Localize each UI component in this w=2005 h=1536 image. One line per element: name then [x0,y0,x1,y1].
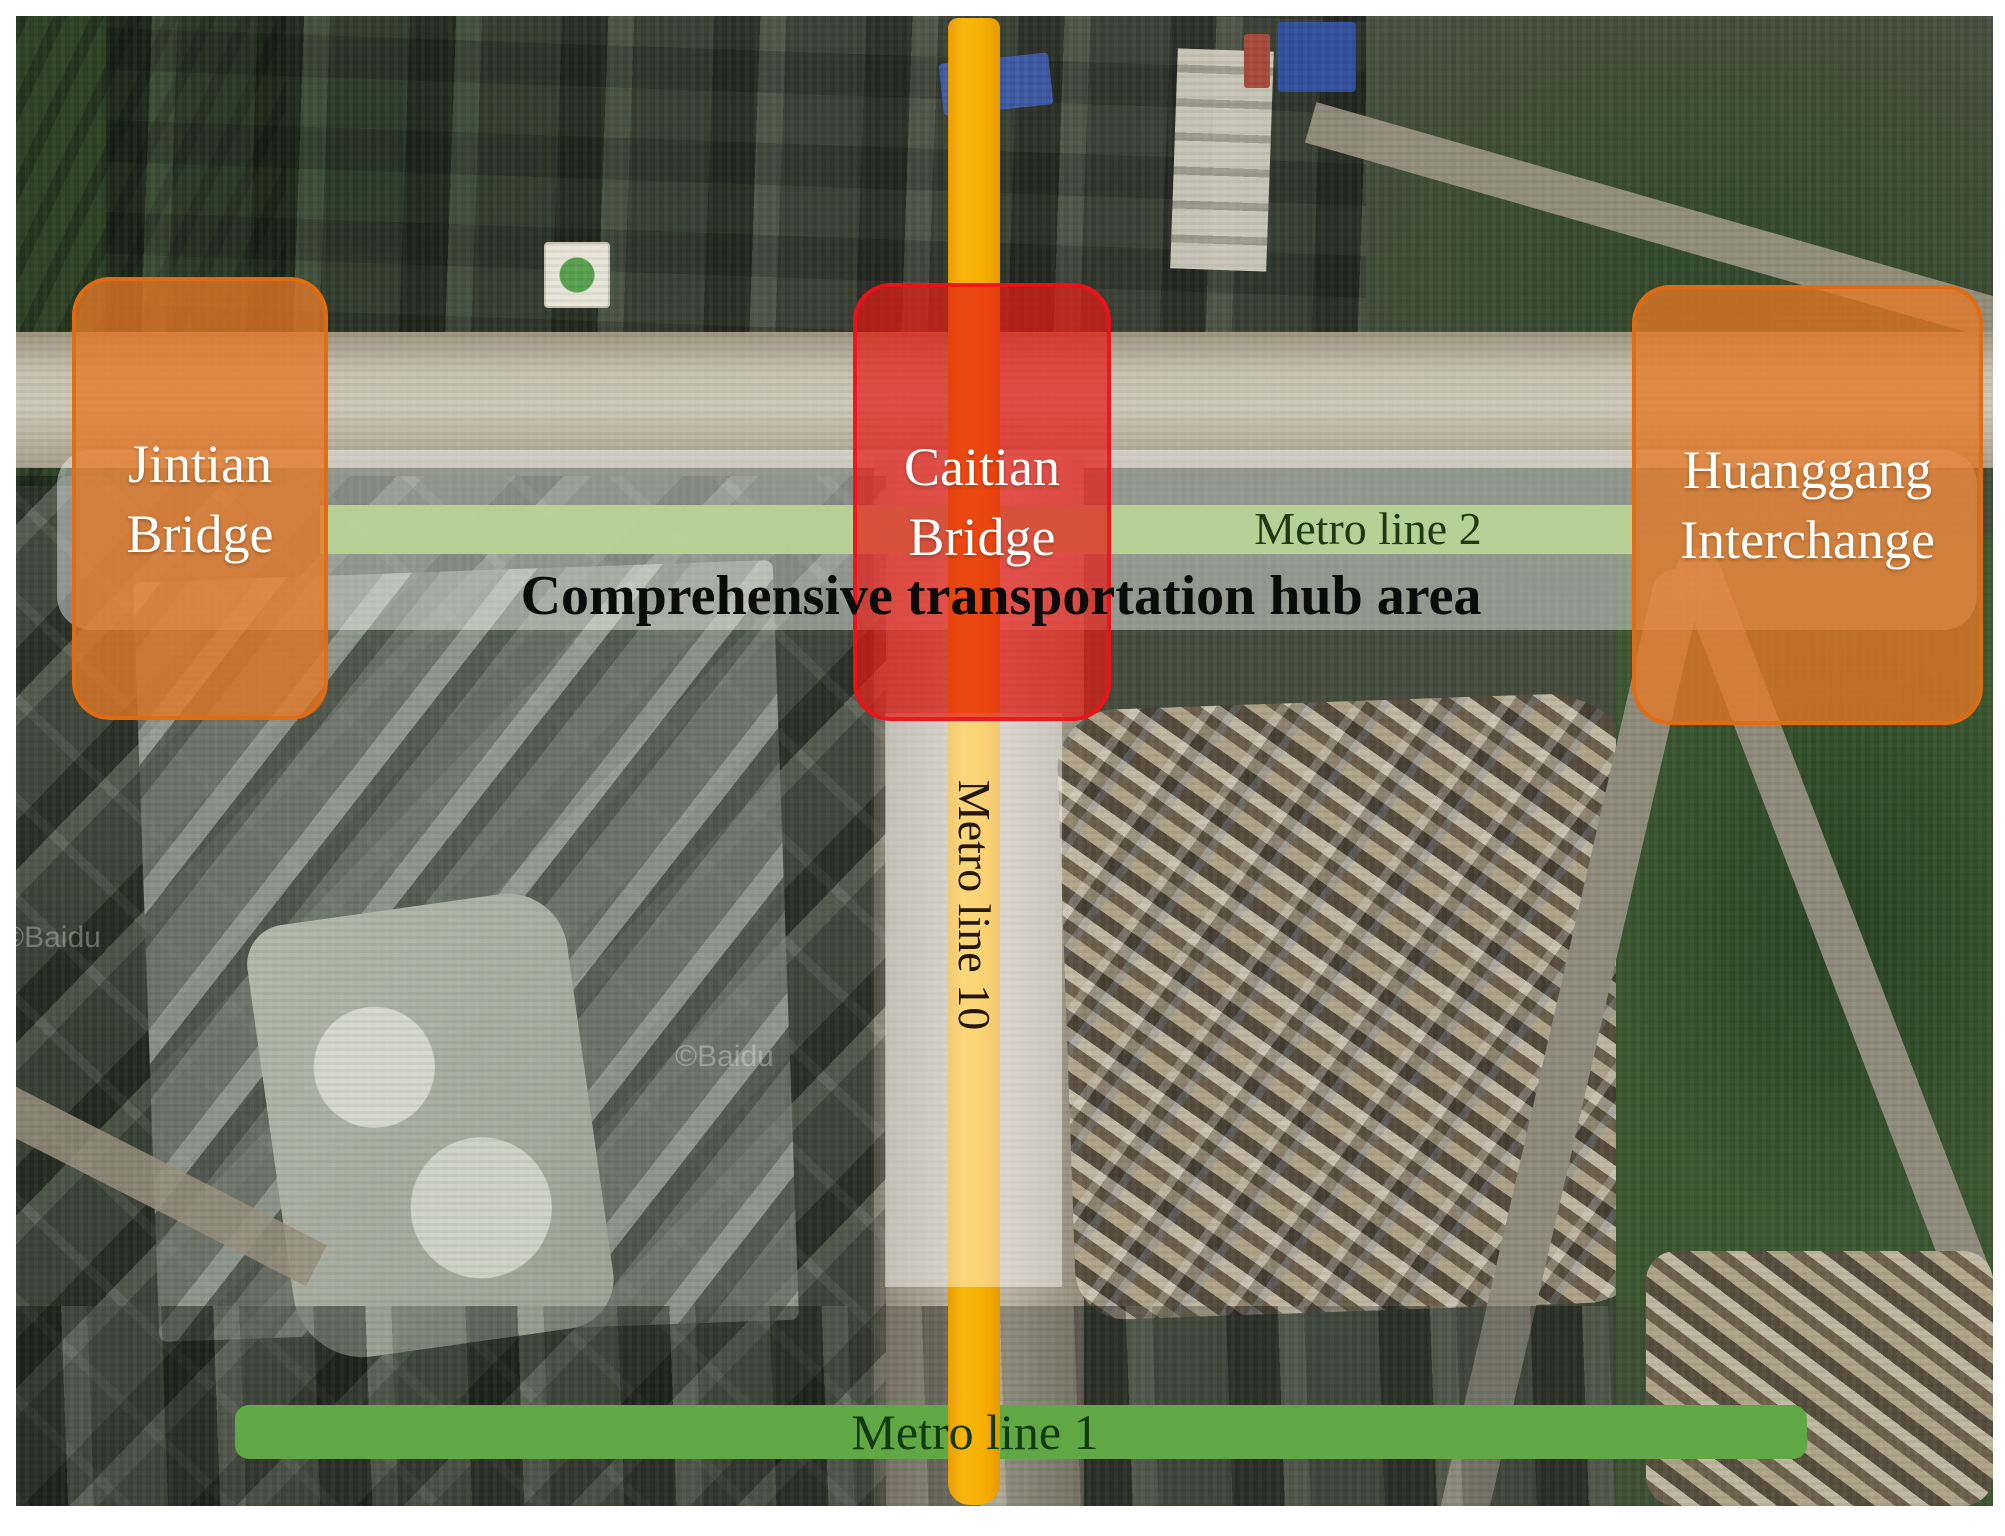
huanggang-interchange-label-line2: Interchange [1680,505,1935,575]
imagery-watermark: ©Baidu [675,1040,774,1074]
metro-line-2-label: Metro line 2 [1168,503,1568,555]
jintian-bridge-label-line1: Jintian [128,429,272,499]
jintian-bridge-callout: Jintian Bridge [72,277,328,720]
metro-line-1-label: Metro line 1 [775,1406,1175,1458]
satellite-map: ©Baidu ©Baidu Jintian Bridge Caitian Bri… [16,16,1993,1506]
imagery-watermark: ©Baidu [16,921,101,955]
huanggang-interchange-label-line1: Huanggang [1683,435,1932,505]
caitian-bridge-label-line1: Caitian [904,432,1060,502]
caitian-bridge-label-line2: Bridge [909,502,1056,572]
caitian-bridge-callout: Caitian Bridge [853,283,1111,721]
figure-page: ©Baidu ©Baidu Jintian Bridge Caitian Bri… [0,0,2005,1536]
hub-area-caption: Comprehensive transportation hub area [396,566,1606,626]
huanggang-interchange-callout: Huanggang Interchange [1632,285,1983,725]
jintian-bridge-label-line2: Bridge [127,499,274,569]
metro-line-10-label: Metro line 10 [949,735,999,1075]
